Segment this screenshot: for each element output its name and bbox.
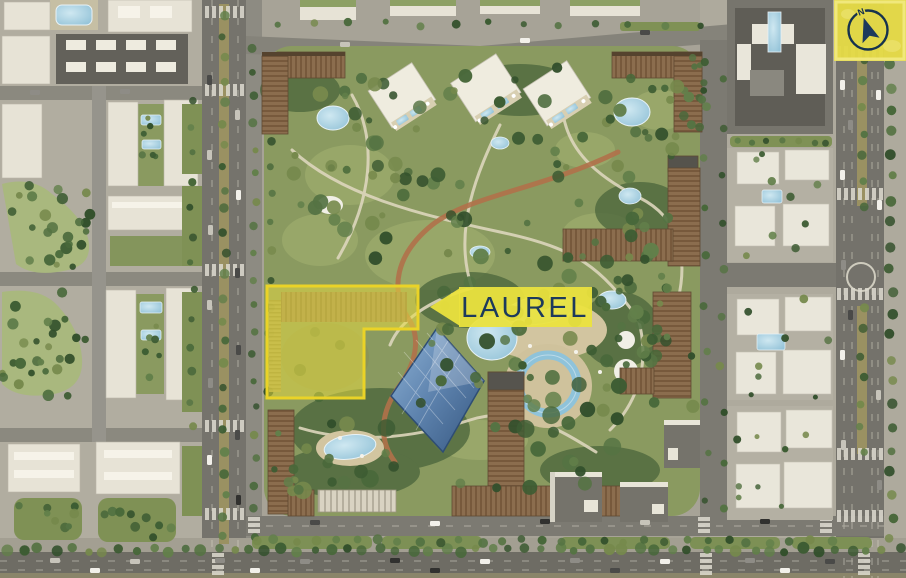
roundabout: [847, 263, 875, 291]
laurel-label-text: LAUREL: [461, 292, 589, 324]
laurel-label[interactable]: LAUREL: [430, 287, 592, 327]
block-east-lower: [727, 406, 833, 520]
compass-north-icon: N: [834, 0, 906, 61]
right-district: [727, 0, 833, 520]
masterplan-map: LAUREL N: [0, 0, 906, 578]
block-northeast-dark: [727, 0, 833, 134]
block-east-upper: [727, 148, 833, 262]
map-canvas: LAUREL N: [0, 0, 906, 578]
block-east-middle: [727, 294, 833, 400]
street-inner-right: [700, 40, 727, 530]
